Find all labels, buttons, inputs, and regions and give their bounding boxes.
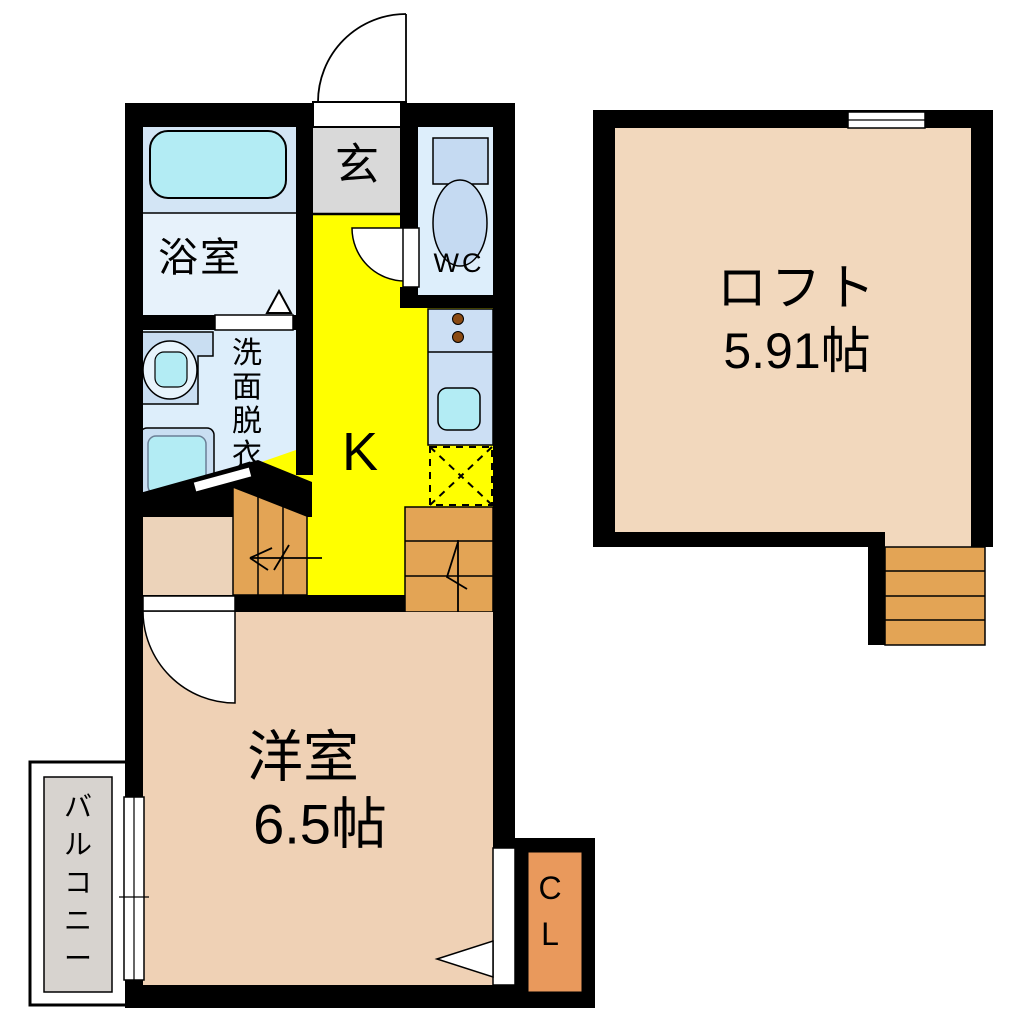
entrance-doorway xyxy=(313,102,406,127)
kitchen-sink-icon xyxy=(438,388,480,430)
bathtub-icon xyxy=(150,131,286,198)
closet-door xyxy=(493,848,515,985)
balcony-window xyxy=(119,797,149,980)
loft-size: 5.91帖 xyxy=(723,323,870,379)
balcony-area: バルコニー xyxy=(30,762,127,1005)
room-door-leaf xyxy=(143,596,235,611)
floorplan-page: バルコニー 玄 浴室 洗面脱衣所 WC xyxy=(0,0,1020,1020)
staircase-lower-right xyxy=(405,507,493,612)
western-room-label: 洋室 xyxy=(247,726,359,789)
loft-label: ロフト xyxy=(717,260,879,316)
washbasin-sink xyxy=(155,352,187,387)
floorplan-drawing: バルコニー 玄 浴室 洗面脱衣所 WC xyxy=(0,0,1020,1020)
wc-area: WC xyxy=(418,127,493,295)
balcony-label: バルコニー xyxy=(64,791,92,974)
stair-landing xyxy=(143,517,233,595)
western-room-size: 6.5帖 xyxy=(253,793,387,856)
entrance-label: 玄 xyxy=(335,141,379,190)
wc-door-leaf xyxy=(403,228,419,287)
bathroom-door xyxy=(215,315,293,330)
entrance-area: 玄 xyxy=(313,127,406,215)
stove-burner-icon xyxy=(453,314,464,325)
bathroom-area: 浴室 xyxy=(143,127,296,315)
wc-label: WC xyxy=(434,248,485,278)
kitchen-label: K xyxy=(342,422,378,482)
bathroom-label: 浴室 xyxy=(158,236,242,280)
staircase-loft xyxy=(868,532,985,645)
western-room-area: 洋室 6.5帖 xyxy=(143,596,493,985)
stove-burner-icon xyxy=(453,332,464,343)
toilet-tank xyxy=(433,138,488,184)
